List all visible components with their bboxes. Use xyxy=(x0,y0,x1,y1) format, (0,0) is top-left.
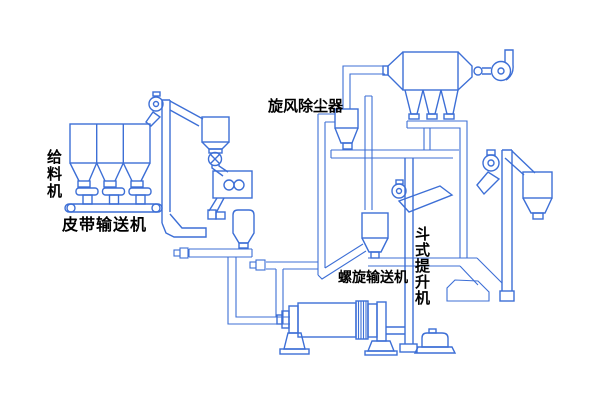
feed-hoppers-icon xyxy=(70,124,150,187)
process-flow-diagram: 给料机 皮带输送机 旋风除尘器 螺旋输送机 斗式提升机 xyxy=(0,0,600,416)
label-screw-conveyor: 螺旋输送机 xyxy=(338,267,408,287)
label-bucket-elevator: 斗式提升机 xyxy=(412,226,433,306)
bucket-elevator-left-icon xyxy=(146,92,206,237)
label-belt-conveyor: 皮带输送机 xyxy=(62,211,147,235)
exhaust-fan-icon xyxy=(474,50,513,81)
label-cyclone-dust-collector: 旋风除尘器 xyxy=(268,95,343,116)
rotary-valve-icon xyxy=(209,153,229,177)
roller-mill-icon xyxy=(208,171,252,219)
vibrating-feeders-icon xyxy=(76,188,151,204)
cyclone-to-bagfilter-pipe-icon xyxy=(343,66,385,210)
surge-hopper-icon xyxy=(233,210,254,248)
rotary-drum-icon xyxy=(277,301,405,341)
bag-filter-icon xyxy=(383,52,472,119)
screen-hopper-icon xyxy=(202,117,229,153)
product-cyclone-icon xyxy=(523,172,552,219)
branch-pipe-icon xyxy=(250,260,318,324)
diagram-line-art xyxy=(0,0,600,416)
drive-motor-icon xyxy=(415,329,455,353)
label-feeder: 给料机 xyxy=(44,149,65,200)
tee-pipe-icon xyxy=(174,248,290,324)
cyclone-riser-pipe-icon xyxy=(318,114,366,279)
